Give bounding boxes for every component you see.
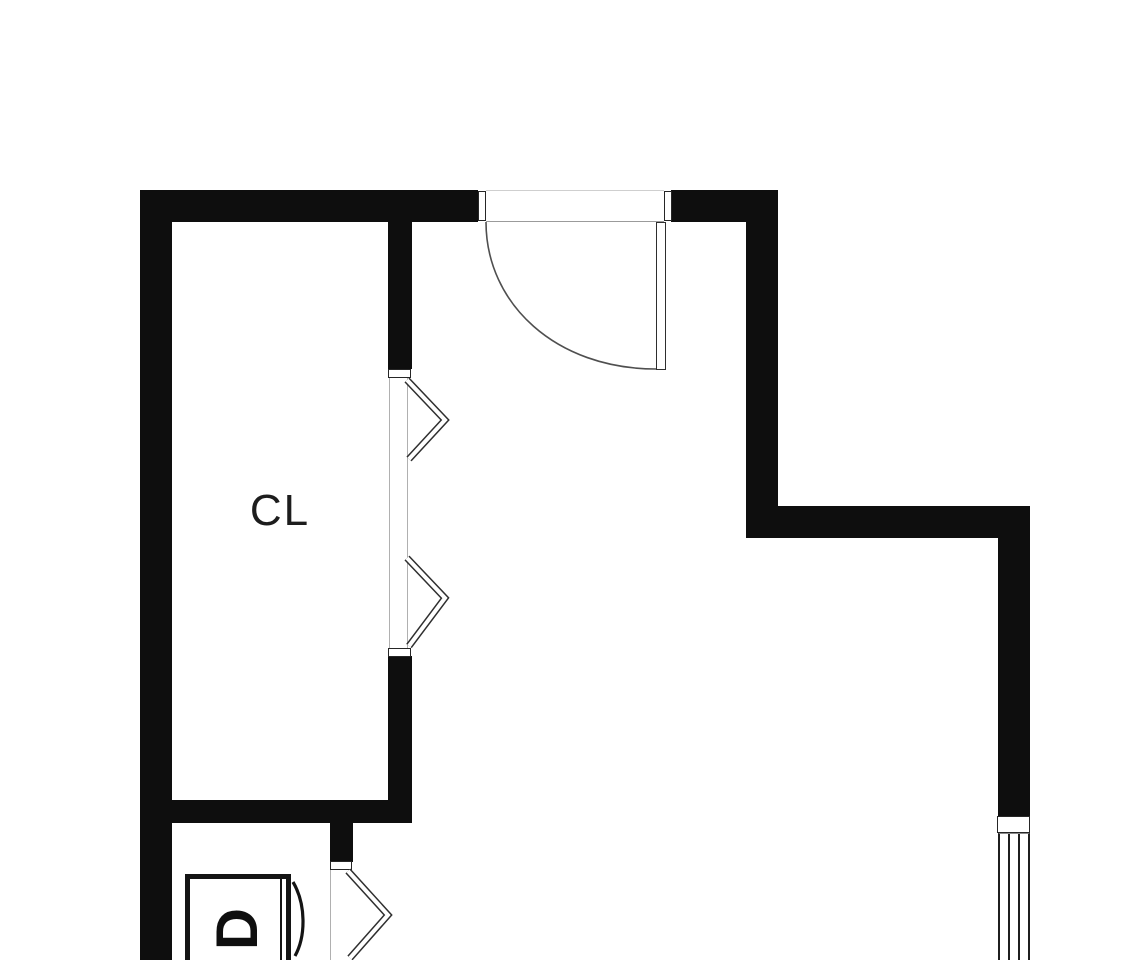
wall-left	[140, 190, 172, 960]
dryer-door-arc	[293, 882, 303, 956]
door-jamb-left	[478, 191, 486, 221]
closet-label: CL	[228, 486, 332, 536]
door-leaf	[656, 222, 666, 370]
window-mullion-left	[1008, 834, 1010, 960]
wall-top-left	[140, 190, 478, 222]
closet-divider-sill-bottom	[388, 648, 411, 657]
wall-step	[746, 506, 1030, 538]
wall-right-upper	[746, 190, 778, 538]
floor-plan: D CL	[0, 0, 1136, 960]
closet-divider-sill-top	[388, 369, 411, 378]
dryer-door-edge	[280, 877, 282, 960]
dryer-label: D	[206, 894, 268, 960]
bifold-door-upper-2	[407, 558, 445, 646]
wall-closet-divider-lower	[388, 656, 412, 803]
wall-closet-divider-upper	[388, 220, 412, 369]
window-sill	[997, 816, 1030, 833]
window-mullion-right	[1018, 834, 1020, 960]
bifold-door-upper-1	[407, 380, 445, 459]
wall-right-lower	[998, 506, 1030, 817]
wall-stub-lower-closet	[330, 822, 353, 862]
wall-closet-bottom	[150, 800, 412, 823]
window	[998, 833, 1030, 960]
door-opening-bottom-line	[486, 221, 664, 222]
closet-track-right-line	[407, 377, 408, 649]
door-opening-top-line	[486, 190, 664, 191]
closet-track-left-line	[389, 377, 390, 649]
lower-closet-track-line	[330, 869, 331, 960]
bifold-door-lower	[348, 871, 388, 958]
door-swing-arc	[486, 222, 656, 369]
lower-closet-sill	[330, 861, 352, 870]
door-jamb-right	[664, 191, 672, 221]
